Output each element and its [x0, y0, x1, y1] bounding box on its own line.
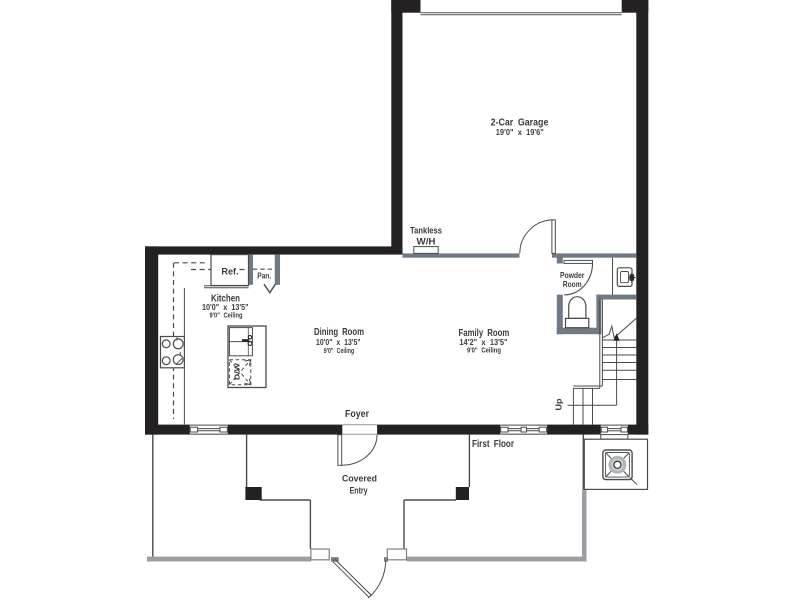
- svg-text:9'0" Ceiling: 9'0" Ceiling: [210, 310, 243, 319]
- svg-text:W/H: W/H: [417, 236, 436, 246]
- svg-text:Pan.: Pan.: [257, 272, 271, 281]
- svg-text:Entry: Entry: [350, 486, 369, 496]
- svg-text:9'0" Ceiling: 9'0" Ceiling: [324, 346, 354, 355]
- svg-text:Foyer: Foyer: [345, 409, 369, 420]
- svg-text:Covered: Covered: [342, 473, 377, 484]
- svg-text:D/W: D/W: [235, 363, 242, 380]
- svg-text:Up: Up: [554, 399, 564, 411]
- svg-text:Ref.: Ref.: [221, 266, 238, 277]
- svg-text:Room: Room: [563, 279, 582, 289]
- svg-text:19'0" x 19'6": 19'0" x 19'6": [496, 127, 544, 137]
- svg-text:Tankless: Tankless: [410, 226, 442, 236]
- svg-text:First Floor: First Floor: [472, 439, 514, 450]
- svg-text:9'0" Ceiling: 9'0" Ceiling: [467, 346, 501, 355]
